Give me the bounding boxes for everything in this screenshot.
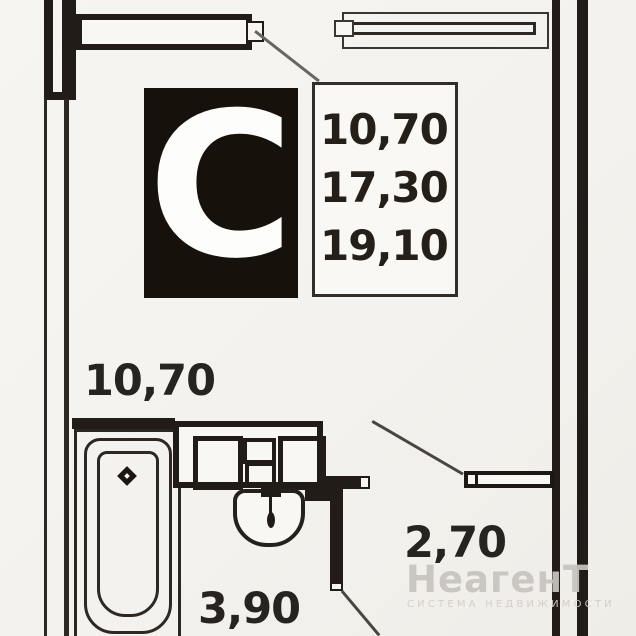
wall-left-top-inner <box>62 0 76 99</box>
watermark-brand: НеагенТ <box>406 558 589 601</box>
area-info-box: 10,70 17,30 19,10 <box>312 82 458 297</box>
bathroom-door-jamb <box>330 582 343 591</box>
wall-entry-horizontal <box>464 471 554 488</box>
area-value-total: 19,10 <box>320 217 455 275</box>
wall-left-inner-line <box>64 99 69 636</box>
window-top-right <box>342 12 549 49</box>
wall-bathroom-top <box>72 418 175 429</box>
floor-plan-canvas: С 10,70 17,30 19,10 10,70 3,90 2,70 <box>0 0 636 636</box>
wall-right-inner <box>552 0 560 636</box>
wall-left-outer-line <box>44 99 47 636</box>
window-top-right-glass-line-2 <box>353 32 533 35</box>
vanity-counter <box>173 421 323 488</box>
watermark-tagline: СИСТЕМА НЕДВИЖИМОСТИ <box>407 599 615 610</box>
window-top-right-glass-line-1 <box>353 22 533 25</box>
room-area-label-main: 10,70 <box>84 356 215 406</box>
bathroom-door-leaf <box>341 590 381 636</box>
bathtub-drain-dot <box>124 473 130 479</box>
counter-cabinet-left <box>193 436 243 490</box>
entry-door-leaf <box>371 420 463 475</box>
sink-faucet-drop <box>267 512 275 528</box>
wall-left-cap <box>44 92 76 100</box>
sink-faucet-icon <box>261 486 281 497</box>
unit-type-box: С <box>144 88 298 298</box>
window-top-right-left-cap <box>334 20 354 37</box>
wall-left-top-outer <box>44 0 53 99</box>
unit-type-letter: С <box>148 87 295 287</box>
wall-entry-jamb-line <box>475 475 478 484</box>
room-area-label-hall: 3,90 <box>198 584 300 634</box>
wall-hall-jamb <box>359 476 370 489</box>
window-top-left <box>76 14 252 50</box>
wall-right-outer <box>577 0 588 636</box>
area-value-reduced: 17,30 <box>320 159 455 217</box>
area-value-living: 10,70 <box>320 101 455 159</box>
counter-cabinet-small-top <box>243 438 276 464</box>
wall-hall-stub <box>317 476 359 489</box>
counter-cabinet-small-bottom <box>245 462 276 488</box>
window-top-right-divider <box>533 22 536 35</box>
wall-bathroom-right-vertical <box>330 489 343 582</box>
